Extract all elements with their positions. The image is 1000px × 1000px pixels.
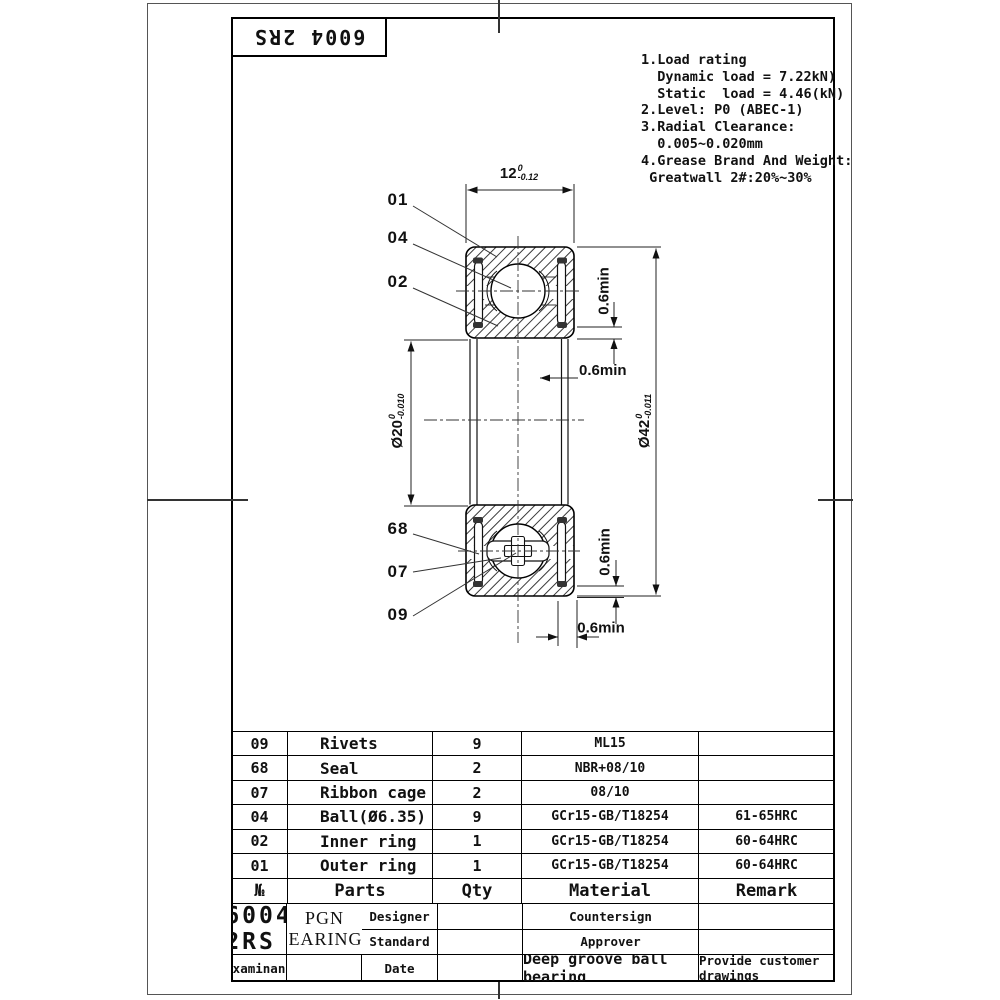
dim-min-text: 0.6min xyxy=(579,362,627,379)
callout-ribbon-cage: 07 xyxy=(388,562,409,582)
header-no: № xyxy=(232,879,288,903)
dim-width-value: 12 xyxy=(500,165,517,182)
bore-lines xyxy=(470,339,568,505)
date-value xyxy=(438,955,523,981)
part-qty: 1 xyxy=(433,830,522,854)
callout-rivets: 09 xyxy=(388,605,409,625)
callout-ball: 04 xyxy=(388,228,409,248)
part-no: 09 xyxy=(232,732,288,756)
part-name: Rivets xyxy=(288,732,433,756)
part-qty: 9 xyxy=(433,805,522,829)
part-name: Outer ring xyxy=(288,854,433,878)
dim-min-upper-right: 0.6min xyxy=(596,267,613,315)
part-remark: 60-64HRC xyxy=(699,830,834,854)
seal-right-upper xyxy=(558,262,566,324)
company-line2: BEARINGS xyxy=(287,929,362,950)
dim-od: Ø42 0-0.011 xyxy=(635,394,653,448)
part-no: 04 xyxy=(232,805,288,829)
approver-label: Approver xyxy=(523,930,699,956)
title-part-number: 6004 2RS xyxy=(232,904,287,955)
callout-outer-ring: 01 xyxy=(388,190,409,210)
seal-left-upper xyxy=(475,262,483,324)
part-qty: 2 xyxy=(433,756,522,780)
title-remark: Provide customer drawings xyxy=(699,955,834,981)
part-name: Ball(Ø6.35) xyxy=(288,805,433,829)
part-qty: 1 xyxy=(433,854,522,878)
designer-value xyxy=(438,904,523,930)
dim-width-tol-lower: -0.12 xyxy=(518,173,539,182)
company-line1: PGN xyxy=(287,908,362,929)
header-material: Material xyxy=(522,879,699,903)
dim-min-text: 0.6min xyxy=(597,528,614,576)
dim-od-value: Ø42 xyxy=(636,420,653,448)
callout-seal: 68 xyxy=(388,519,409,539)
part-material: GCr15-GB/T18254 xyxy=(522,830,699,854)
title-block: Designer Countersign 6004 2RS PGN BEARIN… xyxy=(231,904,835,982)
dim-min-text: 0.6min xyxy=(596,267,613,315)
part-material: GCr15-GB/T18254 xyxy=(522,805,699,829)
dim-min-bottom: 0.6min xyxy=(577,620,625,637)
standard-value xyxy=(438,930,523,956)
part-material: ML15 xyxy=(522,732,699,756)
product-name: Deep groove ball bearing xyxy=(523,955,699,981)
dim-min-text: 0.6min xyxy=(577,620,625,637)
header-parts: Parts xyxy=(288,879,433,903)
dim-bore: Ø20 0-0.010 xyxy=(388,394,406,449)
dim-bore-value: Ø20 xyxy=(389,420,406,448)
part-name: Inner ring xyxy=(288,830,433,854)
approver-value xyxy=(699,930,834,956)
part-remark: 61-65HRC xyxy=(699,805,834,829)
part-no: 01 xyxy=(232,854,288,878)
standard-label: Standard xyxy=(362,930,438,956)
dim-od-tol-lower: -0.011 xyxy=(644,394,653,419)
designer-label: Designer xyxy=(362,904,438,930)
part-name: Seal xyxy=(288,756,433,780)
part-remark: 60-64HRC xyxy=(699,854,834,878)
date-label: Date xyxy=(362,955,438,981)
dim-min-lower-right: 0.6min xyxy=(597,528,614,576)
upper-section xyxy=(466,247,574,338)
part-material: NBR+08/10 xyxy=(522,756,699,780)
part-remark xyxy=(699,732,834,756)
part-no: 07 xyxy=(232,781,288,805)
part-no: 68 xyxy=(232,756,288,780)
examinant-value xyxy=(287,955,362,981)
lower-section xyxy=(466,505,574,596)
header-remark: Remark xyxy=(699,879,834,903)
dim-bore-tol-lower: -0.010 xyxy=(397,394,406,420)
seal-right-lower xyxy=(558,522,566,584)
part-remark xyxy=(699,756,834,780)
countersign-label: Countersign xyxy=(523,904,699,930)
part-qty: 9 xyxy=(433,732,522,756)
parts-table: 09 Rivets 9 ML15 68 Seal 2 NBR+08/10 07 … xyxy=(231,731,835,904)
dim-width: 12 0-0.12 xyxy=(500,164,538,182)
part-no: 02 xyxy=(232,830,288,854)
part-qty: 2 xyxy=(433,781,522,805)
part-remark xyxy=(699,781,834,805)
company-name: PGN BEARINGS xyxy=(287,904,362,955)
countersign-value xyxy=(699,904,834,930)
callout-inner-ring: 02 xyxy=(388,272,409,292)
part-material: 08/10 xyxy=(522,781,699,805)
part-name: Ribbon cage xyxy=(288,781,433,805)
part-material: GCr15-GB/T18254 xyxy=(522,854,699,878)
examinant-label: Examinant xyxy=(232,955,287,981)
dim-min-middle: 0.6min xyxy=(579,362,627,379)
header-qty: Qty xyxy=(433,879,522,903)
